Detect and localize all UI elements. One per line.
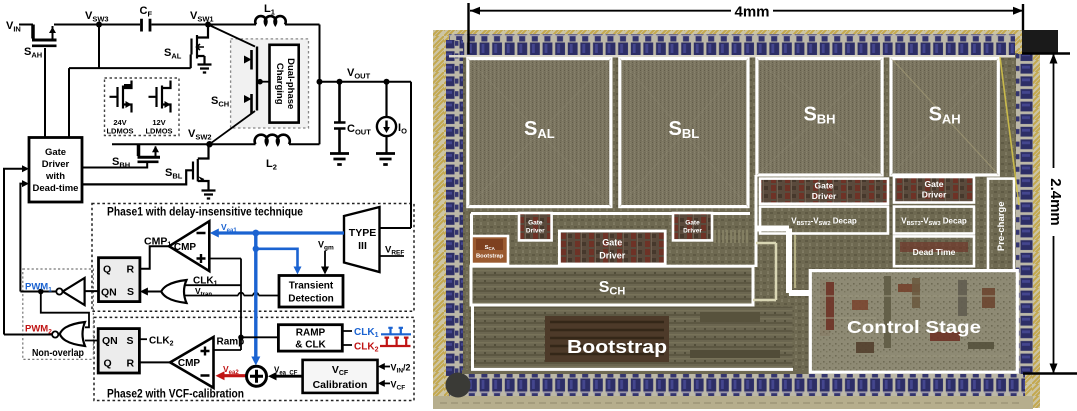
svg-text:Non-overlap: Non-overlap [32,348,84,359]
svg-text:S: S [127,335,134,347]
svg-text:Bootstrap: Bootstrap [567,337,667,357]
svg-text:QN: QN [101,287,117,299]
svg-text:TYPE: TYPE [349,227,376,239]
svg-text:Gate: Gate [602,238,622,248]
svg-text:Bootstrap: Bootstrap [476,254,504,260]
svg-text:R: R [127,264,135,276]
svg-text:CMP: CMP [174,242,197,253]
svg-text:PWM2: PWM2 [25,324,52,336]
svg-text:Charging: Charging [274,63,285,105]
svg-text:Driver: Driver [526,228,545,235]
svg-text:Driver: Driver [42,159,70,170]
svg-text:Ramp: Ramp [217,337,245,348]
svg-text:Q: Q [103,264,111,276]
svg-text:Q: Q [104,358,112,370]
svg-text:III: III [358,240,367,252]
svg-text:R: R [127,358,135,370]
svg-text:Dual-phase: Dual-phase [285,58,296,109]
svg-text:& CLK: & CLK [295,340,326,351]
svg-text:Driver: Driver [599,251,626,261]
svg-text:with: with [45,171,65,182]
svg-text:CMP: CMP [178,358,201,369]
svg-text:Gate: Gate [45,147,66,158]
svg-text:PWM1: PWM1 [25,282,52,294]
svg-text:Driver: Driver [812,191,837,201]
svg-text:Transient: Transient [289,281,334,292]
svg-text:Calibration: Calibration [313,379,368,391]
svg-text:LDMOS: LDMOS [145,127,172,136]
svg-text:Pre-charge: Pre-charge [996,201,1007,251]
svg-text:SCA: SCA [485,245,496,251]
svg-text:4mm: 4mm [734,4,769,21]
svg-text:Dead Time: Dead Time [913,247,956,257]
svg-text:Gate: Gate [685,220,700,227]
svg-text:Dead-time: Dead-time [33,183,79,194]
svg-text:Driver: Driver [683,228,702,235]
svg-text:Phase2 with VCF-calibration: Phase2 with VCF-calibration [107,387,244,401]
svg-text:Driver: Driver [922,190,947,200]
svg-text:Gate: Gate [528,220,543,227]
svg-text:2.4mm: 2.4mm [1047,178,1064,226]
svg-text:QN: QN [102,335,118,347]
svg-text:RAMP: RAMP [296,328,326,339]
svg-text:Detection: Detection [288,294,334,305]
svg-text:S: S [127,286,134,298]
svg-text:Gate: Gate [925,179,944,189]
svg-text:Gate: Gate [815,181,834,191]
svg-text:Phase1 with delay-insensitive: Phase1 with delay-insensitive technique [107,205,303,219]
svg-text:LDMOS: LDMOS [106,127,133,136]
svg-text:Control Stage: Control Stage [847,317,981,337]
